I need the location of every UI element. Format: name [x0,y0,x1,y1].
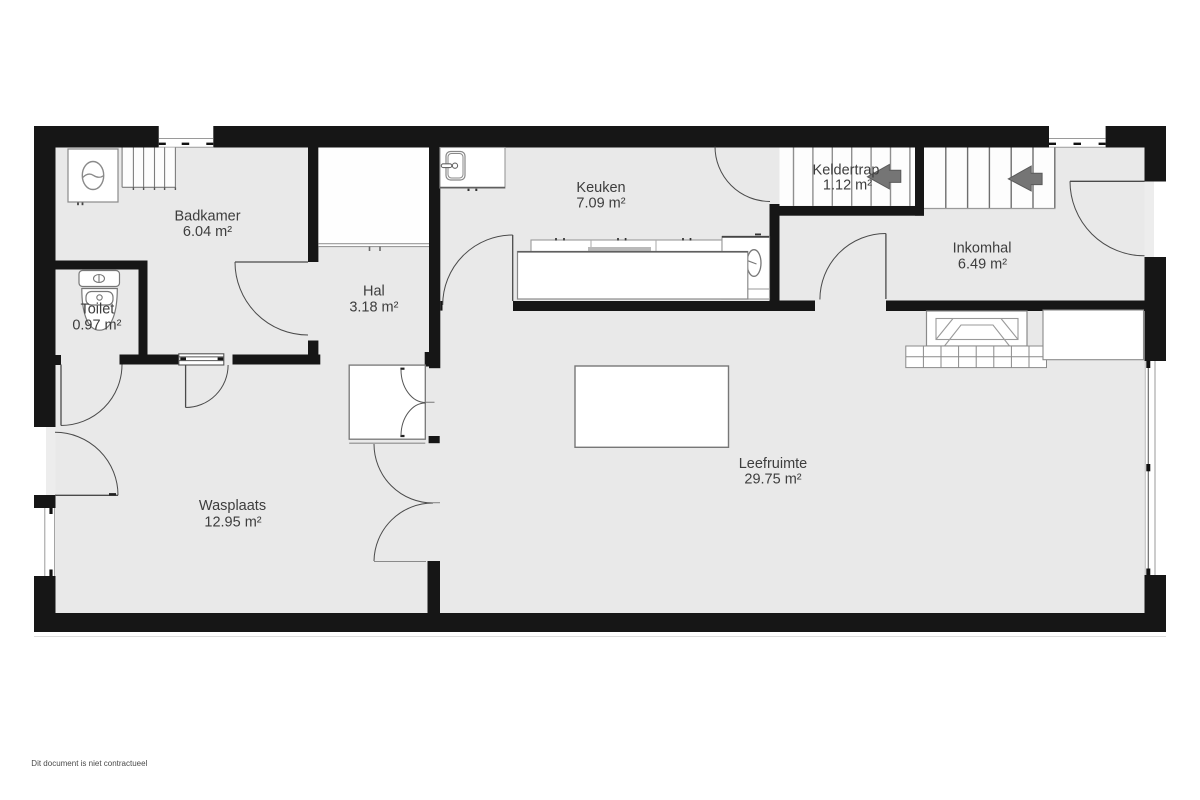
svg-text:12.95 m²: 12.95 m² [204,515,261,531]
svg-text:Toilet: Toilet [80,302,114,318]
svg-text:Wasplaats: Wasplaats [199,498,266,514]
svg-text:6.04 m²: 6.04 m² [183,224,232,240]
svg-text:Inkomhal: Inkomhal [953,240,1012,256]
svg-text:0.97 m²: 0.97 m² [72,317,121,333]
svg-text:7.09 m²: 7.09 m² [576,195,625,211]
svg-text:Keldertrap: Keldertrap [813,163,880,179]
svg-text:29.75 m²: 29.75 m² [744,472,801,488]
svg-text:3.18 m²: 3.18 m² [349,299,398,315]
svg-text:Dit document is niet contractu: Dit document is niet contractueel [31,759,147,768]
svg-text:Keuken: Keuken [576,180,625,196]
svg-text:Hal: Hal [363,284,385,300]
svg-text:Badkamer: Badkamer [174,209,240,225]
svg-text:6.49 m²: 6.49 m² [958,257,1007,273]
svg-text:Leefruimte: Leefruimte [739,456,808,472]
svg-text:1.12 m²: 1.12 m² [823,178,872,194]
